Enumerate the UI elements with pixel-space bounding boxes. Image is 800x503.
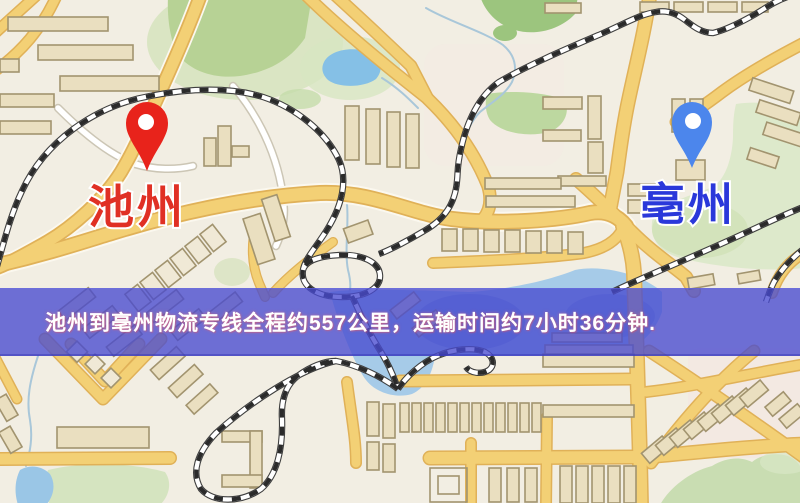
route-info-text: 池州到亳州物流专线全程约557公里，运输时间约7小时36分钟.	[0, 307, 656, 337]
destination-city-label: 亳州	[640, 180, 736, 230]
origin-city-label: 池州	[88, 182, 186, 233]
pin-hole	[138, 114, 154, 130]
map-canvas: 池州 亳州	[0, 0, 800, 503]
pin-hole	[685, 113, 701, 129]
map-screenshot: 池州 亳州 池州到亳州物流专线全程约557公里，运输时间约7小时36分钟.	[0, 0, 800, 503]
route-info-banner: 池州到亳州物流专线全程约557公里，运输时间约7小时36分钟.	[0, 288, 800, 356]
